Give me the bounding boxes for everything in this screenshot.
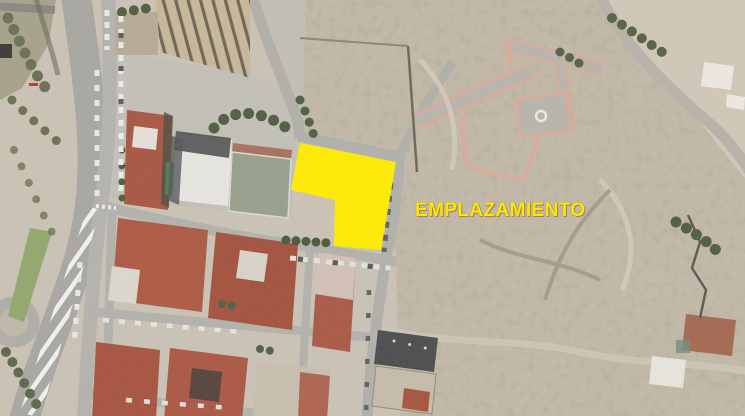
site-label: EMPLAZAMIENTO: [415, 201, 586, 220]
aerial-photo: EMPLAZAMIENTO: [0, 0, 745, 416]
photo-grain: [0, 0, 745, 416]
aerial-photo-canvas: [0, 0, 745, 416]
